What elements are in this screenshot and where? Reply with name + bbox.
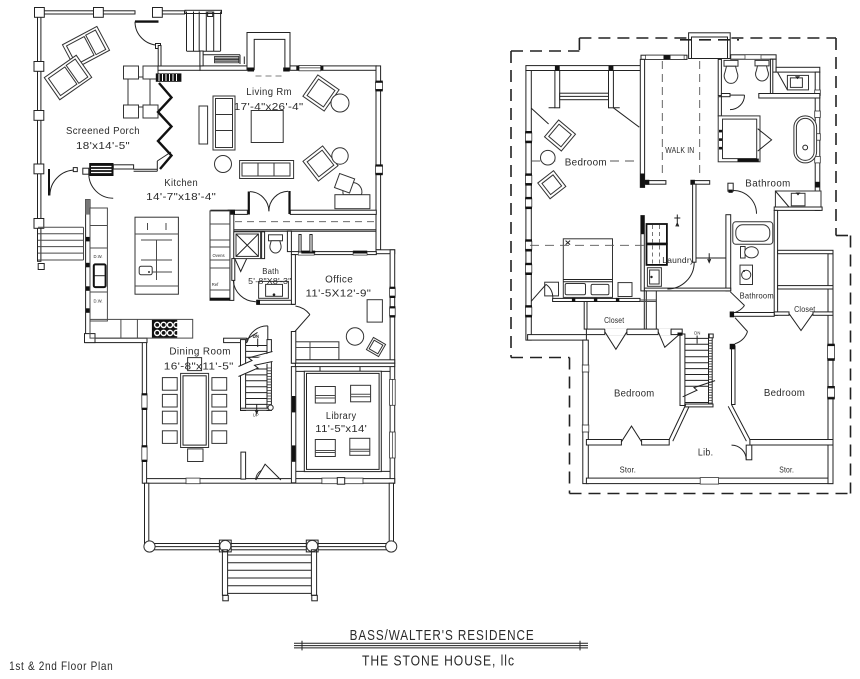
svg-text:Closet: Closet bbox=[604, 315, 625, 325]
svg-text:Kitchen: Kitchen bbox=[164, 178, 198, 189]
svg-text:Screened Porch: Screened Porch bbox=[66, 126, 140, 137]
svg-text:D.W.: D.W. bbox=[94, 299, 103, 304]
svg-text:THE STONE HOUSE, llc: THE STONE HOUSE, llc bbox=[362, 653, 515, 670]
svg-text:Bedroom: Bedroom bbox=[614, 388, 655, 400]
svg-text:Bathroom: Bathroom bbox=[740, 291, 774, 301]
svg-text:D.W.: D.W. bbox=[94, 254, 103, 259]
svg-text:11'-5X12'-9": 11'-5X12'-9" bbox=[306, 288, 372, 300]
svg-text:Ref: Ref bbox=[212, 282, 219, 287]
svg-text:Lib.: Lib. bbox=[698, 448, 714, 459]
svg-text:BASS/WALTER'S RESIDENCE: BASS/WALTER'S RESIDENCE bbox=[350, 627, 535, 644]
svg-text:5'-8"X8'-3": 5'-8"X8'-3" bbox=[248, 276, 291, 286]
svg-text:Laundry: Laundry bbox=[662, 255, 695, 265]
svg-text:WALK IN: WALK IN bbox=[665, 145, 694, 155]
svg-text:Bathroom: Bathroom bbox=[745, 179, 790, 190]
svg-text:Library: Library bbox=[326, 411, 357, 422]
svg-text:Bedroom: Bedroom bbox=[565, 157, 607, 169]
svg-text:UP: UP bbox=[253, 413, 259, 418]
svg-text:Bath: Bath bbox=[262, 266, 279, 276]
svg-text:17'-4"x26'-4": 17'-4"x26'-4" bbox=[234, 101, 304, 113]
svg-text:Ovens: Ovens bbox=[213, 253, 225, 258]
svg-text:14'-7"x18'-4": 14'-7"x18'-4" bbox=[146, 191, 216, 203]
svg-text:Stor.: Stor. bbox=[779, 465, 794, 475]
svg-text:Office: Office bbox=[325, 275, 353, 286]
svg-text:Living Rm: Living Rm bbox=[246, 87, 292, 98]
svg-text:16'-8"x11'-5": 16'-8"x11'-5" bbox=[164, 361, 234, 373]
svg-text:Stor.: Stor. bbox=[620, 465, 637, 475]
svg-text:11'-5"x14': 11'-5"x14' bbox=[315, 423, 367, 435]
svg-text:DN: DN bbox=[694, 330, 700, 335]
svg-text:Bedroom: Bedroom bbox=[764, 387, 805, 399]
svg-text:18'x14'-5": 18'x14'-5" bbox=[76, 140, 130, 152]
svg-text:Closet: Closet bbox=[794, 304, 816, 314]
svg-text:Dining Room: Dining Room bbox=[169, 347, 231, 358]
svg-text:1st & 2nd Floor Plan: 1st & 2nd Floor Plan bbox=[9, 659, 113, 673]
